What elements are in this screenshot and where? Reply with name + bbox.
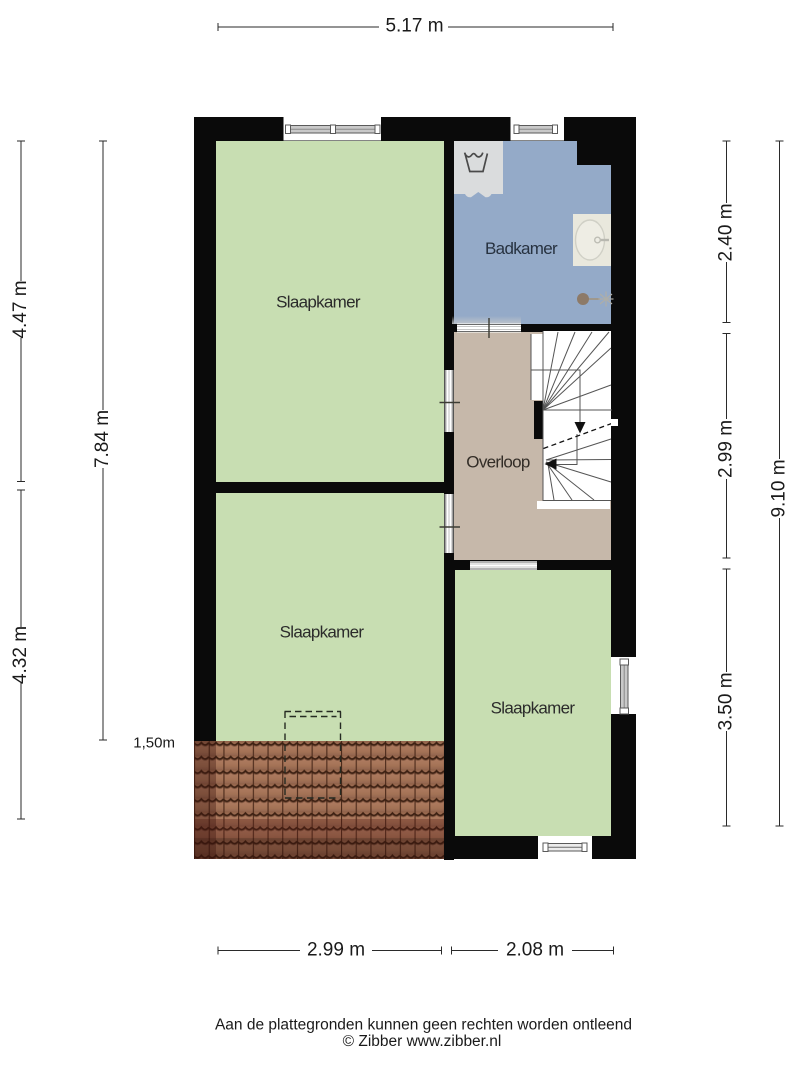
svg-text:4.47 m: 4.47 m: [10, 280, 31, 338]
svg-text:7.84 m: 7.84 m: [92, 410, 113, 468]
svg-text:2.99 m: 2.99 m: [716, 420, 737, 478]
svg-text:Slaapkamer: Slaapkamer: [280, 623, 365, 642]
svg-text:Aan de plattegronden kunnen ge: Aan de plattegronden kunnen geen rechten…: [215, 1017, 632, 1034]
svg-text:Overloop: Overloop: [466, 453, 530, 472]
svg-text:1,50m: 1,50m: [133, 735, 175, 752]
svg-text:© Zibber www.zibber.nl: © Zibber www.zibber.nl: [343, 1033, 502, 1050]
svg-text:2.40 m: 2.40 m: [716, 203, 737, 261]
svg-text:3.50 m: 3.50 m: [716, 672, 737, 730]
svg-text:Badkamer: Badkamer: [485, 239, 558, 258]
svg-text:Slaapkamer: Slaapkamer: [276, 293, 361, 312]
svg-text:2.08 m: 2.08 m: [506, 940, 564, 961]
svg-text:5.17 m: 5.17 m: [385, 16, 443, 37]
svg-text:9.10 m: 9.10 m: [769, 459, 790, 517]
svg-text:2.99 m: 2.99 m: [307, 940, 365, 961]
svg-text:Slaapkamer: Slaapkamer: [491, 699, 576, 718]
svg-text:4.32 m: 4.32 m: [10, 626, 31, 684]
